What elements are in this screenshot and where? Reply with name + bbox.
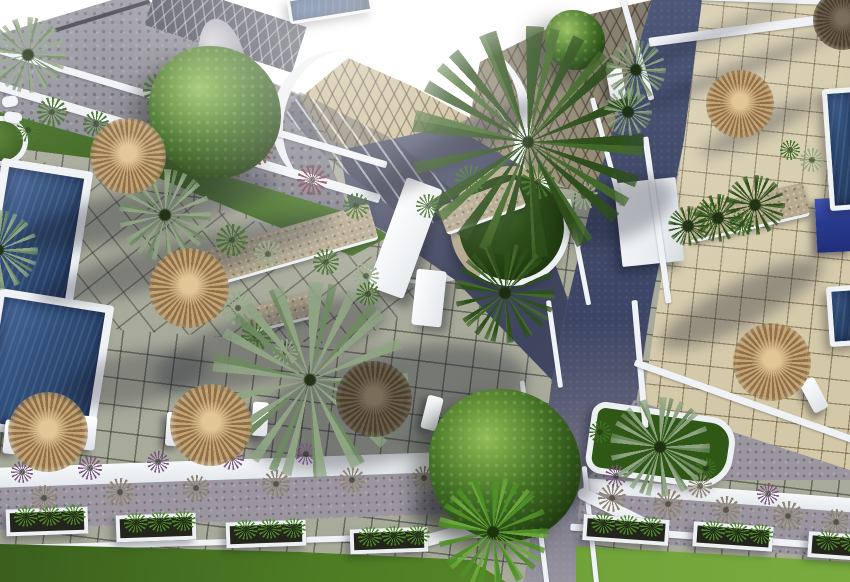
- street-planter-box: [6, 507, 89, 537]
- planter-shrub: [358, 526, 383, 547]
- planter-shrub: [639, 516, 664, 538]
- planter-shrub: [281, 518, 306, 539]
- plant-tuft: [757, 483, 779, 505]
- thatch-umbrella: [90, 118, 166, 194]
- plant-tuft: [343, 193, 369, 219]
- planter-shrub: [749, 523, 774, 545]
- plant-tuft: [589, 421, 611, 443]
- plant-tuft: [254, 240, 282, 268]
- thatch-umbrella: [170, 384, 252, 466]
- planter-shrub: [381, 525, 406, 546]
- plant-tuft: [106, 478, 134, 506]
- street-planter-box: [226, 520, 307, 549]
- planter-shrub: [615, 514, 640, 536]
- plant-tuft: [37, 97, 67, 127]
- plant-tuft: [216, 224, 248, 256]
- planter-shrub: [591, 513, 616, 535]
- planter-shrub: [61, 505, 86, 526]
- plant-tuft: [183, 475, 209, 501]
- plant-tuft: [800, 148, 824, 172]
- street-planter-box: [350, 527, 429, 555]
- palm-tree: [668, 206, 708, 246]
- plant-tuft: [78, 456, 102, 480]
- planter-shrub: [257, 518, 282, 539]
- plant-tuft: [313, 249, 339, 275]
- plant-tuft: [780, 140, 800, 160]
- planter-shrub: [725, 521, 750, 543]
- thatch-umbrella: [706, 70, 774, 138]
- palm-tree: [610, 397, 710, 497]
- scene: [0, 0, 850, 582]
- planter-shrub: [147, 511, 172, 532]
- plant-tuft: [598, 484, 626, 512]
- plant-tuft: [823, 509, 849, 535]
- plant-tuft: [773, 501, 803, 531]
- planter-shrub: [171, 511, 196, 532]
- plant-tuft: [297, 165, 327, 195]
- plant-tuft: [16, 118, 40, 142]
- thatch-umbrella: [336, 361, 412, 437]
- planter-shrub: [405, 525, 430, 546]
- thatch-umbrella: [149, 248, 229, 328]
- thatch-umbrella: [8, 392, 88, 472]
- planter-shrub: [233, 519, 258, 540]
- plant-tuft: [31, 485, 57, 511]
- thatch-umbrella: [733, 323, 811, 401]
- street-planter-box: [116, 513, 197, 543]
- palm-tree: [438, 477, 548, 582]
- palm-tree: [604, 88, 652, 136]
- white-ramp-lower: [411, 269, 447, 328]
- swimming-pool: [826, 285, 850, 347]
- planter-shrub: [123, 512, 148, 533]
- plant-tuft: [147, 451, 169, 473]
- planter-shrub: [840, 531, 850, 553]
- plant-tuft: [712, 496, 740, 524]
- street-planter-box: [807, 531, 850, 561]
- palm-tree: [455, 243, 555, 343]
- planter-shrub: [13, 506, 38, 527]
